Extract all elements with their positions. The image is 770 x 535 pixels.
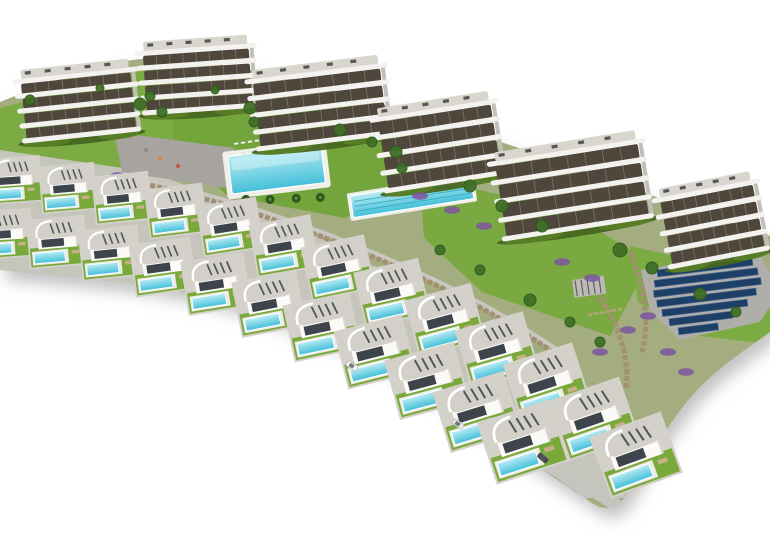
tree [134,98,146,110]
tree [435,245,445,255]
tree [367,137,377,147]
villa-roof [46,164,90,186]
tree [646,262,658,274]
bougainvillea-shrub [476,222,492,230]
bougainvillea-shrub [660,348,676,356]
tree [334,124,346,136]
private-pool [0,243,12,255]
bougainvillea-shrub [412,192,428,200]
apartment-building [133,34,261,122]
tree [536,220,548,232]
tree [249,117,259,127]
bougainvillea-shrub [592,348,608,356]
tree [244,102,256,114]
bougainvillea-shrub [678,368,694,376]
private-pool [46,196,76,208]
tree [524,294,536,306]
bougainvillea-shrub [640,312,656,320]
tree [731,307,741,317]
bougainvillea-shrub [554,258,570,266]
aerial-3d-render [0,0,770,535]
villa-roof [34,217,80,240]
tree [694,288,706,300]
villa [0,155,43,205]
tree [595,337,605,347]
villa-window [0,176,21,185]
tree [496,200,508,212]
villa [91,171,153,225]
villa [38,162,98,214]
tree [464,180,476,192]
tree [475,265,485,275]
tree [211,86,219,94]
tree [145,91,155,101]
private-pool [0,188,22,200]
bougainvillea-shrub [584,274,600,282]
private-pool [34,251,66,264]
tree [25,95,35,105]
tree [96,84,104,92]
tree [565,317,575,327]
tree [397,163,407,173]
tree [157,107,167,117]
tree [390,146,402,158]
tree [613,243,627,257]
bougainvillea-shrub [444,206,460,214]
render-viewport [0,0,770,535]
bougainvillea-shrub [620,326,636,334]
